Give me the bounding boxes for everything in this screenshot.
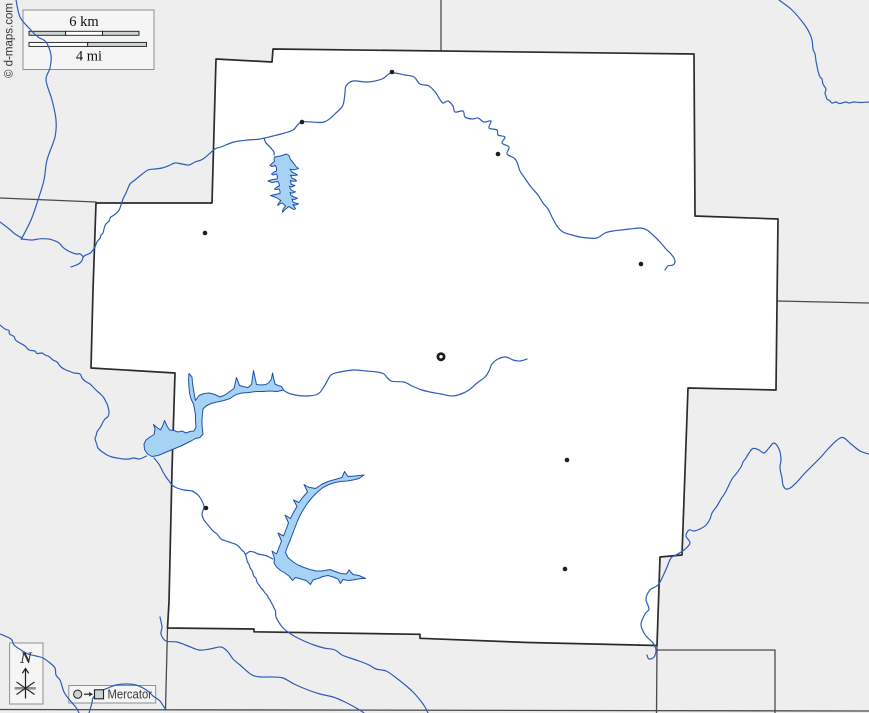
svg-text:Mercator: Mercator [108, 688, 153, 702]
svg-text:6 km: 6 km [69, 14, 99, 30]
svg-text:N: N [19, 650, 33, 667]
svg-text:© d-maps.com: © d-maps.com [4, 3, 16, 78]
svg-text:4 mi: 4 mi [76, 49, 102, 65]
